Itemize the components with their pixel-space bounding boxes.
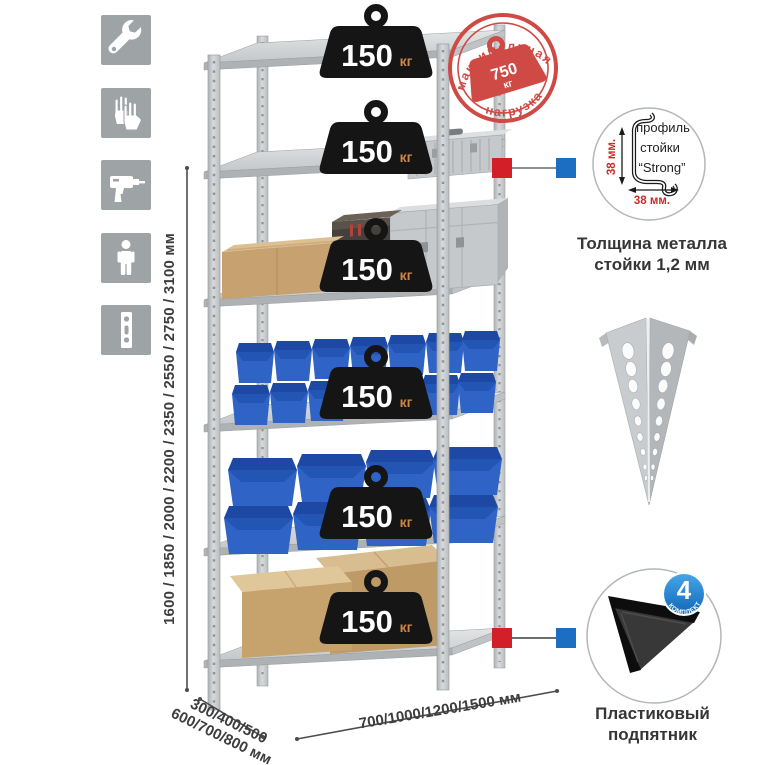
callout-marker-red-top	[492, 158, 512, 178]
person-icon	[101, 233, 151, 283]
callout-marker-blue-top	[556, 158, 576, 178]
callout-marker-blue-bottom	[556, 628, 576, 648]
profile-label-2: стойки	[640, 140, 680, 155]
profile-caption: Толщина металла стойки 1,2 мм	[557, 233, 747, 275]
kit-count-value: 4	[677, 575, 692, 605]
post-profile-detail: 38 мм. 38 мм. профиль стойки “Strong”	[593, 108, 705, 220]
foot-caption: Пластиковый подпятник	[560, 703, 745, 745]
gloves-icon	[101, 88, 151, 138]
profile-label-3: “Strong”	[639, 160, 686, 175]
foot-caption-line1: Пластиковый	[560, 703, 745, 724]
max-load-stamp: максимальная нагрузка 750 кг	[437, 2, 570, 135]
profile-dim-horizontal: 38 мм.	[634, 195, 670, 207]
height-dimension-label: 1600 / 1850 / 2000 / 2200 / 2350 / 2550 …	[161, 159, 179, 699]
profile-caption-line1: Толщина металла	[557, 233, 747, 254]
wrench-icon	[101, 15, 151, 65]
drill-icon	[101, 160, 151, 210]
shelving-rack	[204, 8, 512, 711]
callout-marker-red-bottom	[492, 628, 512, 648]
perforated-post-icon	[101, 305, 151, 355]
infographic-page: 150 кг	[0, 0, 765, 765]
angle-post-image	[599, 318, 697, 505]
profile-caption-line2: стойки 1,2 мм	[557, 254, 747, 275]
height-dimension-text: 1600 / 1850 / 2000 / 2200 / 2350 / 2550 …	[161, 233, 178, 625]
profile-dim-vertical: 38 мм.	[606, 139, 618, 175]
profile-label-1: профиль	[636, 120, 690, 135]
foot-caption-line2: подпятник	[560, 724, 745, 745]
